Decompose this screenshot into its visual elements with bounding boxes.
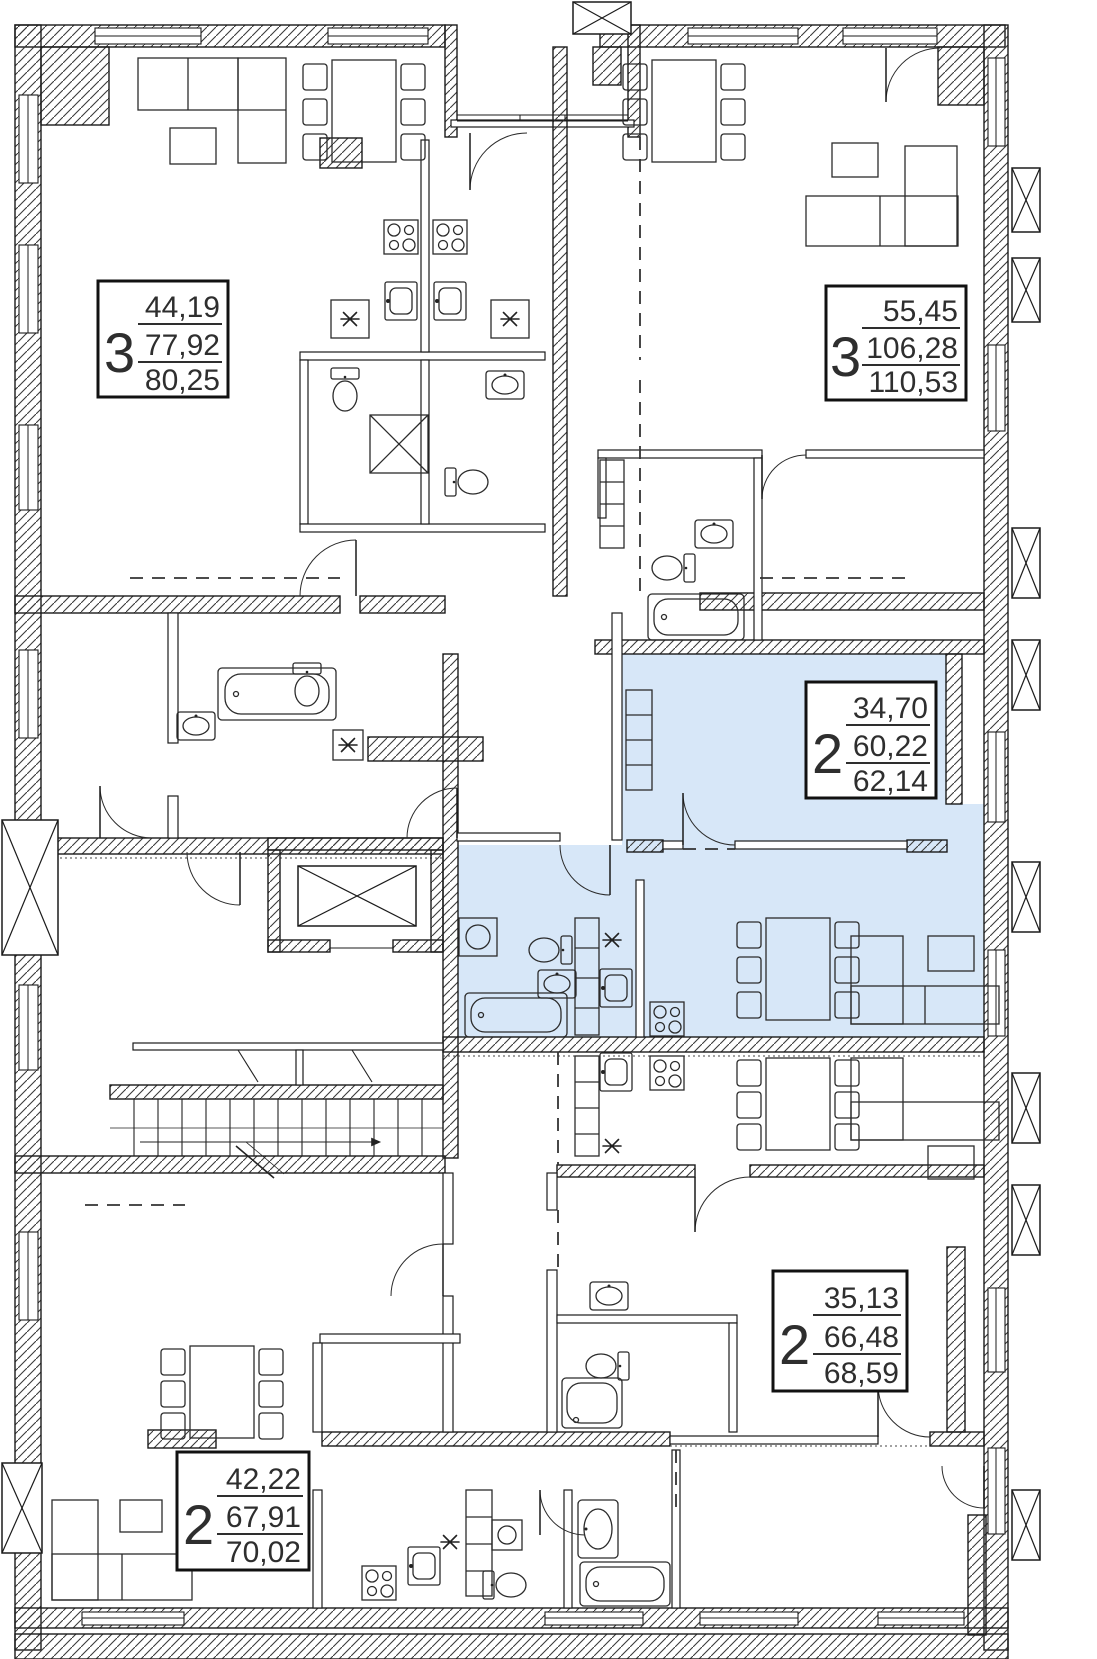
toilet	[331, 368, 359, 411]
washer-asterisk	[441, 1536, 459, 1549]
kitchen-sink	[385, 282, 417, 320]
kitchen-stove	[650, 1056, 684, 1090]
total-area: 80,25	[145, 364, 220, 397]
shower-cabin	[370, 415, 428, 473]
left-shaft-box-2	[2, 1463, 42, 1553]
apartment-area: 106,28	[866, 332, 958, 365]
kitchen-sink	[434, 282, 466, 320]
apartment-label-bottom-left[interactable]: 2 42,22 67,91 70,02	[177, 1452, 309, 1570]
sofa-corner	[138, 58, 286, 163]
apartment-area: 60,22	[853, 730, 928, 763]
washbasin	[695, 520, 733, 548]
bathtub	[562, 1378, 622, 1428]
toilet	[445, 468, 488, 496]
apartment-area: 66,48	[824, 1321, 899, 1354]
side-table	[120, 1500, 162, 1532]
furniture-bottom-left-apartment	[52, 1346, 670, 1606]
vent-shaft	[575, 1056, 599, 1156]
left-shaft-box	[2, 820, 58, 955]
washing-machine	[491, 300, 529, 338]
apartment-area: 77,92	[145, 329, 220, 362]
apartment-label-lower-right[interactable]: 2 35,13 66,48 68,59	[773, 1271, 907, 1391]
pedestal-washbasin	[578, 1500, 618, 1558]
toilet	[293, 663, 321, 706]
toilet	[586, 1352, 629, 1380]
floor-plan-drawing: 3 44,19 77,92 80,25 3 55,45 106,28 110,5…	[0, 0, 1097, 1659]
rooms-count: 2	[183, 1493, 214, 1556]
washbasin	[590, 1282, 628, 1310]
dining-set	[623, 60, 745, 162]
rooms-count: 3	[830, 325, 861, 388]
washing-machine	[331, 300, 369, 338]
dining-set	[161, 1346, 283, 1439]
rooms-count: 3	[104, 321, 135, 384]
washer-asterisk	[603, 1140, 621, 1153]
total-area: 68,59	[824, 1357, 899, 1390]
washbasin	[486, 371, 524, 399]
washbasin	[177, 712, 215, 740]
toilet	[483, 1571, 526, 1599]
living-area: 55,45	[883, 295, 958, 328]
washing-machine	[492, 1520, 522, 1550]
sofa-corner	[851, 1058, 999, 1140]
apartment-label-highlighted[interactable]: 2 34,70 60,22 62,14	[806, 682, 936, 798]
rooms-count: 2	[779, 1313, 810, 1376]
floorplan-page: 3 44,19 77,92 80,25 3 55,45 106,28 110,5…	[0, 0, 1097, 1659]
coffee-table	[832, 143, 878, 177]
sofa-corner	[52, 1500, 192, 1600]
total-area: 62,14	[853, 765, 928, 798]
bathtub	[580, 1562, 670, 1606]
living-area: 44,19	[145, 291, 220, 324]
vent-shaft	[466, 1490, 492, 1596]
living-area: 35,13	[824, 1282, 899, 1315]
apartment-label-top-right[interactable]: 3 55,45 106,28 110,53	[826, 286, 966, 400]
rooms-count: 2	[812, 722, 843, 785]
total-area: 70,02	[226, 1536, 301, 1569]
dining-set	[737, 1058, 859, 1150]
kitchen-stove	[362, 1566, 396, 1600]
coffee-table	[170, 128, 216, 164]
total-area: 110,53	[868, 366, 958, 399]
kitchen-sink	[408, 1547, 440, 1585]
elevator-shaft	[268, 838, 443, 952]
washing-machine	[333, 730, 363, 760]
sofa-corner	[806, 146, 958, 246]
apartment-label-top-left[interactable]: 3 44,19 77,92 80,25	[98, 281, 228, 397]
toilet	[652, 554, 695, 582]
living-area: 42,22	[226, 1463, 301, 1496]
elevator-car-icon	[298, 866, 416, 926]
kitchen-sink	[600, 1053, 632, 1091]
living-area: 34,70	[853, 692, 928, 725]
apartment-area: 67,91	[226, 1501, 301, 1534]
